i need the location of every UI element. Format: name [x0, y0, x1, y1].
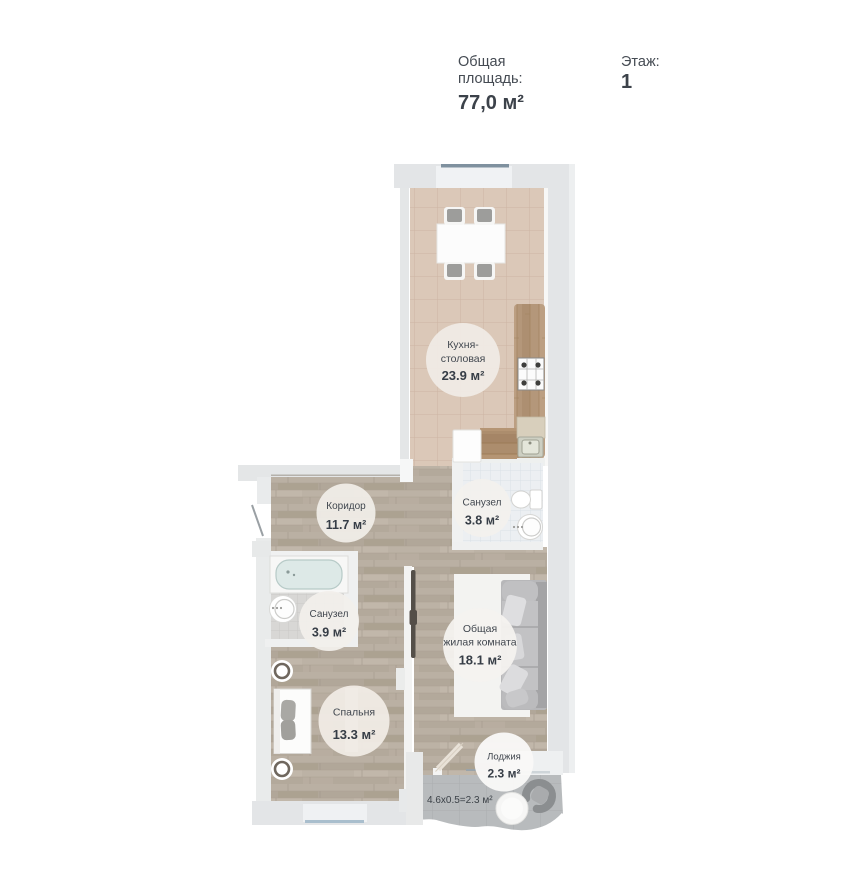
svg-text:13.3 м²: 13.3 м² — [333, 727, 377, 742]
svg-text:77,0 м²: 77,0 м² — [458, 92, 524, 114]
svg-text:площадь:: площадь: — [458, 71, 523, 87]
svg-text:Спальня: Спальня — [333, 707, 375, 719]
svg-text:18.1 м²: 18.1 м² — [459, 653, 503, 668]
svg-text:23.9 м²: 23.9 м² — [442, 368, 486, 383]
svg-text:Общая: Общая — [463, 623, 497, 635]
svg-text:2.3 м²: 2.3 м² — [488, 767, 521, 781]
svg-text:Коридор: Коридор — [326, 501, 366, 512]
svg-text:3.8 м²: 3.8 м² — [465, 514, 499, 528]
svg-text:Лоджия: Лоджия — [487, 752, 521, 763]
svg-text:Кухня-: Кухня- — [447, 339, 479, 351]
svg-text:жилая комната: жилая комната — [443, 637, 516, 649]
svg-text:Этаж:: Этаж: — [621, 54, 660, 70]
svg-text:11.7 м²: 11.7 м² — [326, 518, 367, 532]
svg-text:4.6x0.5=2.3 м²: 4.6x0.5=2.3 м² — [427, 795, 493, 806]
svg-text:Общая: Общая — [458, 54, 505, 70]
svg-text:1: 1 — [621, 71, 632, 93]
svg-text:столовая: столовая — [441, 353, 486, 365]
svg-text:Санузел: Санузел — [463, 498, 502, 509]
svg-text:Санузел: Санузел — [310, 609, 349, 620]
svg-text:3.9 м²: 3.9 м² — [312, 626, 346, 640]
